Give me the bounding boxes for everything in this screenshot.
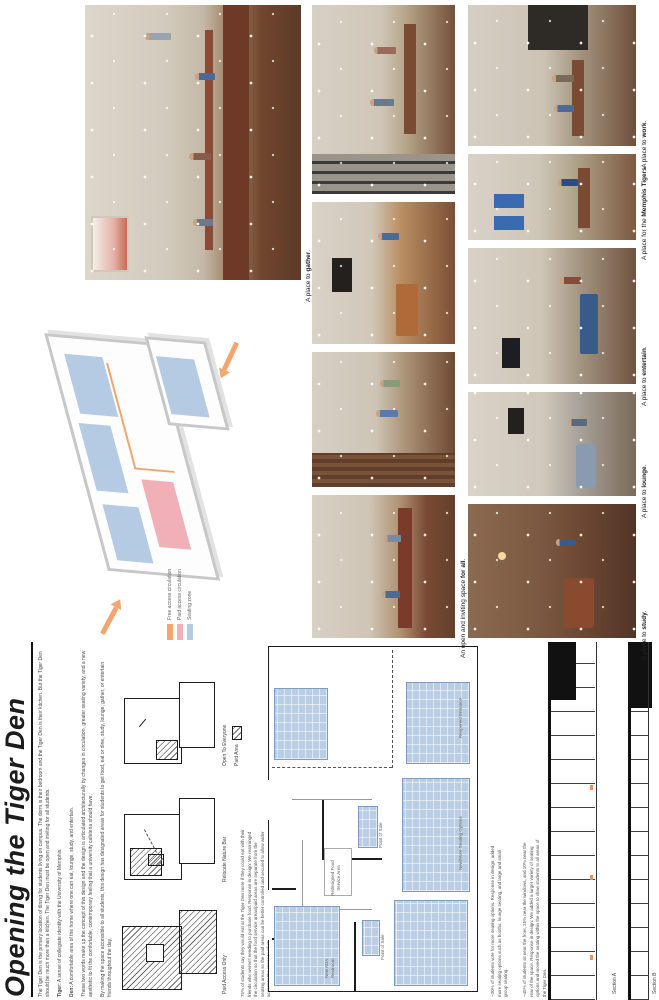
- figure-silhouette: [556, 539, 576, 546]
- tiger-text: A sense of collegiate identity with the …: [57, 848, 63, 982]
- section-floorline: [648, 642, 649, 1000]
- tigers-banner: [494, 216, 524, 230]
- seating-zone: [394, 900, 468, 986]
- caption-pre: A place for the: [641, 217, 648, 260]
- plan-label-ada-restroom: New ADA Restroom: [324, 944, 335, 978]
- intro-paragraph-den: Den: A comfortable area of the home wher…: [69, 650, 76, 997]
- render-caption-memphis: A place for the Memphis Tigers.: [641, 165, 648, 260]
- caption-pre: A place to: [641, 376, 648, 406]
- section-b-label: Section B: [652, 973, 658, 994]
- plan-label-point-of-sale-1: Point of Sale: [378, 822, 384, 848]
- intro-paragraph-5: By making the space accessible to all st…: [100, 650, 114, 997]
- intro-paragraph-1: The Tiger Den is the primary location of…: [38, 650, 52, 997]
- render-for-all: [312, 495, 455, 638]
- caption-bold: work: [641, 122, 648, 137]
- section-poche: [548, 642, 576, 700]
- legend-label: Free access circulation: [167, 569, 173, 620]
- figure-silhouette: [554, 105, 574, 112]
- hatched-area: [179, 910, 217, 974]
- intro-paragraph-tiger: Tiger: A sense of collegiate identity wi…: [57, 650, 64, 997]
- section-floorline: [596, 642, 597, 1000]
- section-b-drawing: [628, 642, 652, 1000]
- point-of-sale-counter: [358, 806, 378, 848]
- diagram-open-to-everyone: [122, 676, 218, 768]
- caption-post: .: [641, 346, 648, 348]
- render-gather: [85, 5, 301, 280]
- table: [578, 168, 590, 228]
- figure-silhouette: [189, 153, 211, 160]
- stat-seating-location: ~45% of students sit near the front, 25%…: [522, 839, 548, 997]
- legend-label: Seating zone: [187, 591, 193, 620]
- caption-post: .: [641, 465, 648, 467]
- render-lounge: [468, 392, 636, 496]
- render-memphis-tigers: [468, 154, 636, 240]
- caption-pre: A place to: [641, 630, 648, 660]
- figure-silhouette: [560, 277, 581, 284]
- booth-seating: [396, 284, 418, 336]
- figure-silhouette: [193, 219, 213, 226]
- caption-bold: entertain: [641, 348, 648, 375]
- caption-bold: gather: [305, 252, 312, 272]
- plan-void: [146, 944, 164, 962]
- paid-boundary-dashed: [392, 650, 393, 768]
- diagram-paid-access-only: [122, 904, 218, 996]
- figure-silhouette: [195, 73, 215, 80]
- legend-swatch-paid-circulation: [177, 624, 183, 640]
- arrow-head: [215, 367, 230, 380]
- tiger-label: Tiger:: [57, 983, 63, 997]
- legend-swatch-free-circulation: [167, 624, 173, 640]
- wall-tv: [502, 338, 520, 368]
- paid-area-legend: Paid Area: [232, 726, 242, 766]
- tigers-banner: [494, 194, 524, 208]
- section-a-label: Section A: [612, 973, 618, 994]
- render-work: [468, 5, 636, 146]
- render-study: [468, 504, 636, 638]
- intro-text: The Tiger Den is the primary location of…: [38, 650, 119, 997]
- main-floor-plan: Redesigned Food Service Area Point of Sa…: [262, 642, 480, 1000]
- figure-silhouette: [552, 75, 574, 82]
- pendant-lamp: [498, 552, 506, 560]
- entry-arrow-icon: [215, 340, 242, 380]
- plan-outline: [179, 682, 215, 748]
- render-caption-for-all: An open and inviting space for all.: [460, 559, 467, 658]
- work-table: [572, 60, 584, 136]
- render-caption-gather: A place to gather.: [305, 250, 312, 302]
- arrow-shaft: [222, 342, 239, 371]
- hatched-area: [148, 854, 164, 866]
- den-label: Den:: [69, 986, 75, 997]
- diagram-caption: Paid Access Only: [222, 955, 228, 994]
- section-seat: [590, 785, 593, 790]
- screenshot-viewport: Opening the Tiger Den The Tiger Den is t…: [0, 0, 659, 1000]
- sofa: [576, 444, 596, 488]
- caption-post: .: [460, 559, 467, 561]
- long-table: [223, 5, 249, 280]
- hatched-area: [156, 740, 178, 760]
- wall-segment: [272, 888, 296, 890]
- interior-line: [292, 799, 372, 800]
- caption-bold: Memphis Tigers: [641, 167, 648, 216]
- presentation-board: Opening the Tiger Den The Tiger Den is t…: [0, 0, 659, 1000]
- axon-legend: Free access circulation Paid access circ…: [167, 569, 197, 640]
- paid-area-label: Paid Area: [234, 744, 240, 766]
- wall-tv: [508, 408, 524, 434]
- figure-silhouette: [370, 99, 394, 106]
- section-a-drawing: [548, 642, 610, 1000]
- caption-post: .: [641, 121, 648, 123]
- plan-label-seating-options: New/More Seating Options: [458, 816, 464, 870]
- axonometric-diagram: Free access circulation Paid access circ…: [55, 307, 270, 642]
- skylight: [91, 216, 129, 272]
- stat-seating-options: ~30% of students vote for more seating o…: [490, 839, 510, 997]
- caption-pre: An open and inviting space: [460, 578, 467, 658]
- booth-seating: [564, 578, 594, 628]
- caption-post: .: [305, 250, 312, 252]
- legend-label: Paid access circulation: [177, 569, 183, 620]
- plan-label-entrance: Reopened Entrance: [458, 698, 464, 738]
- den-text: A comfortable area of the home where one…: [69, 807, 75, 985]
- wall-segment: [354, 922, 356, 992]
- entry-arrow-icon: [97, 596, 126, 636]
- section-seat: [590, 875, 593, 880]
- figure-silhouette: [568, 419, 587, 426]
- figure-silhouette: [380, 380, 400, 387]
- diagram-relocate-nature-bar: [122, 792, 218, 884]
- dark-alcove: [528, 5, 588, 50]
- render-caption-lounge: A place to lounge.: [641, 465, 648, 518]
- figure-silhouette: [378, 233, 399, 240]
- long-table: [205, 30, 213, 250]
- wall-notch: [265, 890, 273, 940]
- plan-outline: [179, 798, 215, 864]
- axon-building: [43, 329, 267, 584]
- page-title: Opening the Tiger Den: [0, 697, 31, 997]
- pool-table: [580, 294, 598, 354]
- wall-notch: [265, 780, 273, 820]
- figure-silhouette: [558, 179, 578, 186]
- caption-bold: for all: [460, 560, 467, 578]
- point-of-sale-counter: [362, 920, 380, 956]
- plan-label-point-of-sale-2: Point of Sale: [380, 934, 386, 960]
- caption-pre: A place to: [305, 272, 312, 302]
- figure-silhouette: [145, 33, 171, 40]
- arrow-shaft: [100, 606, 118, 635]
- paid-area-swatch: [232, 726, 242, 740]
- render-interior-2: [312, 352, 455, 487]
- window-mullions: [312, 154, 455, 194]
- wall-tv: [332, 258, 352, 292]
- diagram-caption: Open To Everyone: [222, 725, 228, 766]
- render-caption-entertain: A place to entertain.: [641, 346, 648, 406]
- section-seat: [590, 955, 593, 960]
- legend-swatch-seating-zone: [187, 624, 193, 640]
- render-caption-work: A place to work.: [641, 121, 648, 168]
- table: [398, 508, 412, 628]
- figure-silhouette: [374, 47, 396, 54]
- legend-row: Free access circulation: [167, 569, 173, 640]
- figure-silhouette: [384, 535, 401, 542]
- render-interior-3: [312, 202, 455, 344]
- caption-pre: A place to: [641, 138, 648, 168]
- plan-label-food-service: Redesigned Food Service Area: [330, 856, 341, 900]
- caption-bold: study: [641, 612, 648, 629]
- figure-silhouette: [376, 410, 398, 417]
- render-entertain: [468, 248, 636, 384]
- caption-pre: A place to: [641, 488, 648, 518]
- diagram-caption: Relocate Nature Bar: [222, 837, 228, 882]
- table: [404, 24, 416, 134]
- wood-slat-wall: [312, 453, 455, 487]
- legend-row: Seating zone: [187, 569, 193, 640]
- legend-row: Paid access circulation: [177, 569, 183, 640]
- caption-bold: lounge: [641, 466, 648, 487]
- render-caption-study: A place to study.: [641, 610, 648, 660]
- caption-post: .: [641, 610, 648, 612]
- paid-boundary-dashed: [272, 767, 392, 768]
- render-interior-4: [312, 5, 455, 194]
- seating-zone: [274, 688, 328, 760]
- intro-paragraph-4: These two words make up the concept of t…: [81, 650, 95, 997]
- figure-silhouette: [382, 591, 400, 598]
- title-underline: [31, 642, 33, 997]
